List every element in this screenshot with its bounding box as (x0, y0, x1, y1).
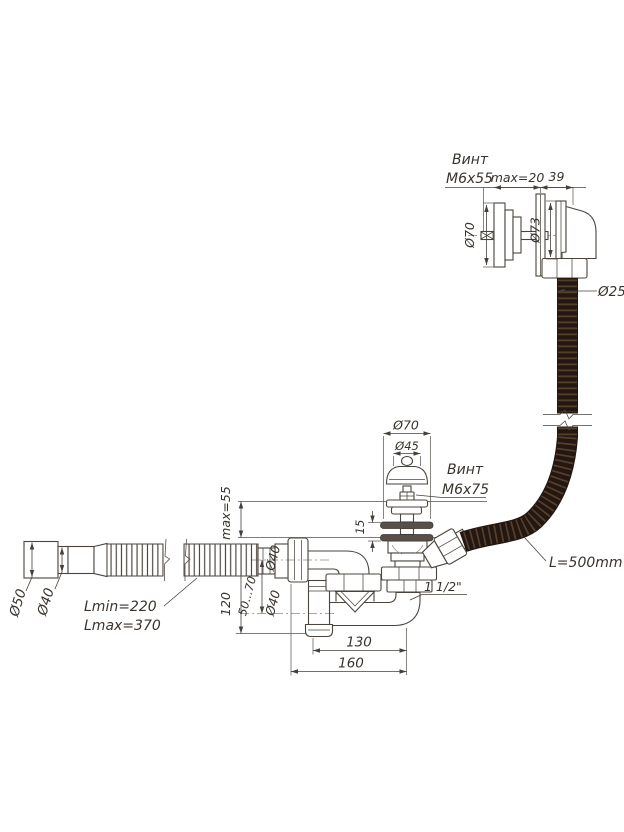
dim-label-max20: max=20 (491, 170, 545, 185)
label-lmax: Lmax=370 (84, 618, 161, 634)
dim-label-39: 39 (549, 169, 565, 184)
drain-screw-note-line1: Винт (447, 462, 484, 478)
overflow-faceplate (494, 203, 521, 267)
corrugated-pipe-right (184, 544, 258, 576)
drain-cap (387, 457, 428, 501)
dim-label-130: 130 (346, 635, 372, 651)
label-lmin: Lmin=220 (84, 599, 157, 615)
dim-label-dia70-mid: Ø70 (392, 418, 419, 433)
corrugated-pipe-left (107, 544, 163, 576)
dim-label-120: 120 (218, 592, 233, 616)
overflow-screw-note-line2: M6x55 (446, 171, 493, 187)
overflow-head-drawing: Винт M6x55 max=20 39 Ø70 (445, 152, 596, 278)
siphon-union-nut (326, 574, 381, 591)
technical-drawing-page: Винт M6x55 max=20 39 Ø70 (0, 0, 624, 832)
drain-washer-lower (381, 535, 434, 542)
overflow-hose: Ø25 L=500mm (463, 278, 624, 571)
siphon-drawing: Винт M6x55 max=20 39 Ø70 (0, 0, 624, 832)
overflow-screw-note-line1: Винт (452, 152, 489, 168)
drain-washer-upper (381, 522, 434, 529)
siphon-outlet-elbow (308, 551, 369, 574)
label-hose-length: L=500mm (549, 555, 623, 571)
dim-label-dia25: Ø25 (597, 284, 624, 300)
dim-label-dia50: Ø50 (6, 587, 30, 619)
dim-label-dia40-left: Ø40 (34, 586, 58, 618)
label-thread-size: 1 1/2" (424, 579, 462, 594)
drain-screw-note-line2: M6x75 (442, 482, 489, 498)
dim-label-dia73: Ø73 (528, 217, 543, 244)
dim-label-dia70-top: Ø70 (462, 222, 477, 249)
drain-screw (403, 486, 411, 492)
overflow-hose-nut (542, 259, 587, 279)
dim-label-15: 15 (353, 520, 367, 535)
flexible-outlet-pipe: Ø50 Ø40 Lmin=220 Lmax=370 (6, 539, 258, 634)
dim-label-50-70: 50...70 (235, 575, 259, 617)
dim-label-dia45: Ø45 (394, 439, 419, 453)
dim-label-max55: max=55 (218, 486, 233, 540)
drain-flange-stack (381, 500, 434, 541)
dim-label-160: 160 (338, 656, 364, 672)
outlet-cuff (24, 542, 58, 579)
